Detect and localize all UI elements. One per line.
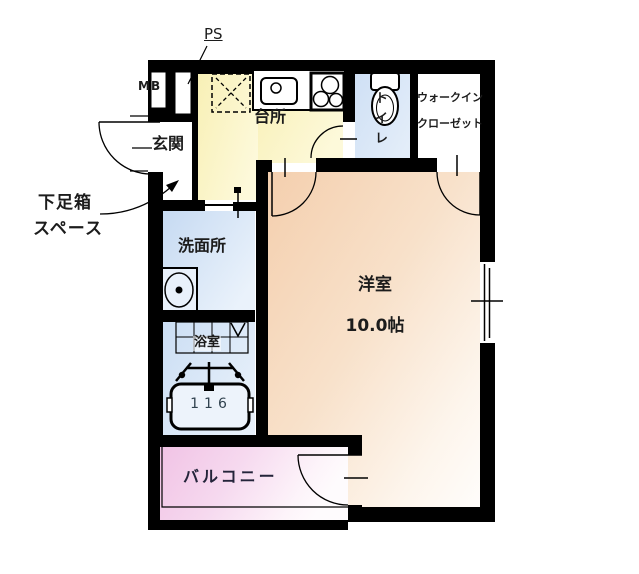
sink-icon bbox=[261, 78, 297, 104]
label-ps: PS bbox=[204, 26, 223, 43]
washroom-door-stop bbox=[234, 187, 241, 193]
closet-floor bbox=[418, 74, 480, 158]
label-washroom: 洗面所 bbox=[178, 237, 226, 255]
wall-washroom-top bbox=[233, 202, 258, 211]
wall-main-room-left bbox=[256, 163, 268, 447]
kitchen-floor bbox=[198, 74, 258, 200]
floor-plan-graphics bbox=[0, 0, 639, 574]
wall-bottom-main-room bbox=[348, 507, 495, 522]
entrance-door-ticks bbox=[130, 116, 152, 171]
label-walkin-closet-1: ウォークイン bbox=[417, 92, 483, 105]
label-shoebox-line2: スペース bbox=[33, 220, 103, 240]
stove-burner bbox=[314, 92, 329, 107]
wall-mid-horizontal bbox=[316, 158, 437, 172]
label-balcony: バルコニー bbox=[183, 468, 278, 486]
pipe-shaft bbox=[175, 72, 191, 114]
wall-bathroom-balcony bbox=[148, 435, 362, 447]
stove-burner bbox=[330, 94, 343, 107]
wall-balcony-room-lower bbox=[348, 505, 362, 522]
label-main-room-size: 10.0帖 bbox=[326, 317, 424, 337]
washing-machine-center bbox=[176, 287, 183, 294]
bathtub-notch bbox=[204, 384, 214, 391]
label-walkin-closet-2: クローゼット bbox=[417, 118, 483, 131]
bath-tap-left bbox=[179, 372, 185, 378]
wall-toilet-closet bbox=[410, 60, 418, 158]
label-main-room: 洋室 bbox=[330, 276, 420, 296]
label-meter-box: MB bbox=[138, 80, 161, 94]
wall-kitchen-room-stub bbox=[256, 160, 272, 172]
wall-entrance-kitchen bbox=[192, 122, 198, 203]
bathtub-handle-left bbox=[167, 398, 172, 412]
wall-balcony-room-upper bbox=[348, 435, 362, 455]
label-entrance: 玄関 bbox=[152, 135, 184, 153]
label-bathtub-size: 116 bbox=[184, 396, 238, 412]
bathtub-handle-right bbox=[248, 398, 253, 412]
label-toilet: トイレ bbox=[371, 91, 386, 151]
wall-balcony-left bbox=[148, 435, 160, 530]
label-bathroom: 浴室 bbox=[193, 336, 221, 351]
floor-plan: PS MB 玄関 下足箱 スペース 台所 トイレ ウォークイン クローゼット 洗… bbox=[0, 0, 639, 574]
bath-tap-right bbox=[235, 372, 241, 378]
wall-left-lower bbox=[148, 172, 163, 447]
label-kitchen: 台所 bbox=[254, 108, 286, 126]
window-opening bbox=[480, 262, 495, 343]
room-fills bbox=[160, 74, 480, 520]
wall-balcony-bottom bbox=[148, 520, 348, 530]
stove-burner bbox=[322, 77, 339, 94]
label-shoebox-line1: 下足箱 bbox=[38, 194, 92, 214]
